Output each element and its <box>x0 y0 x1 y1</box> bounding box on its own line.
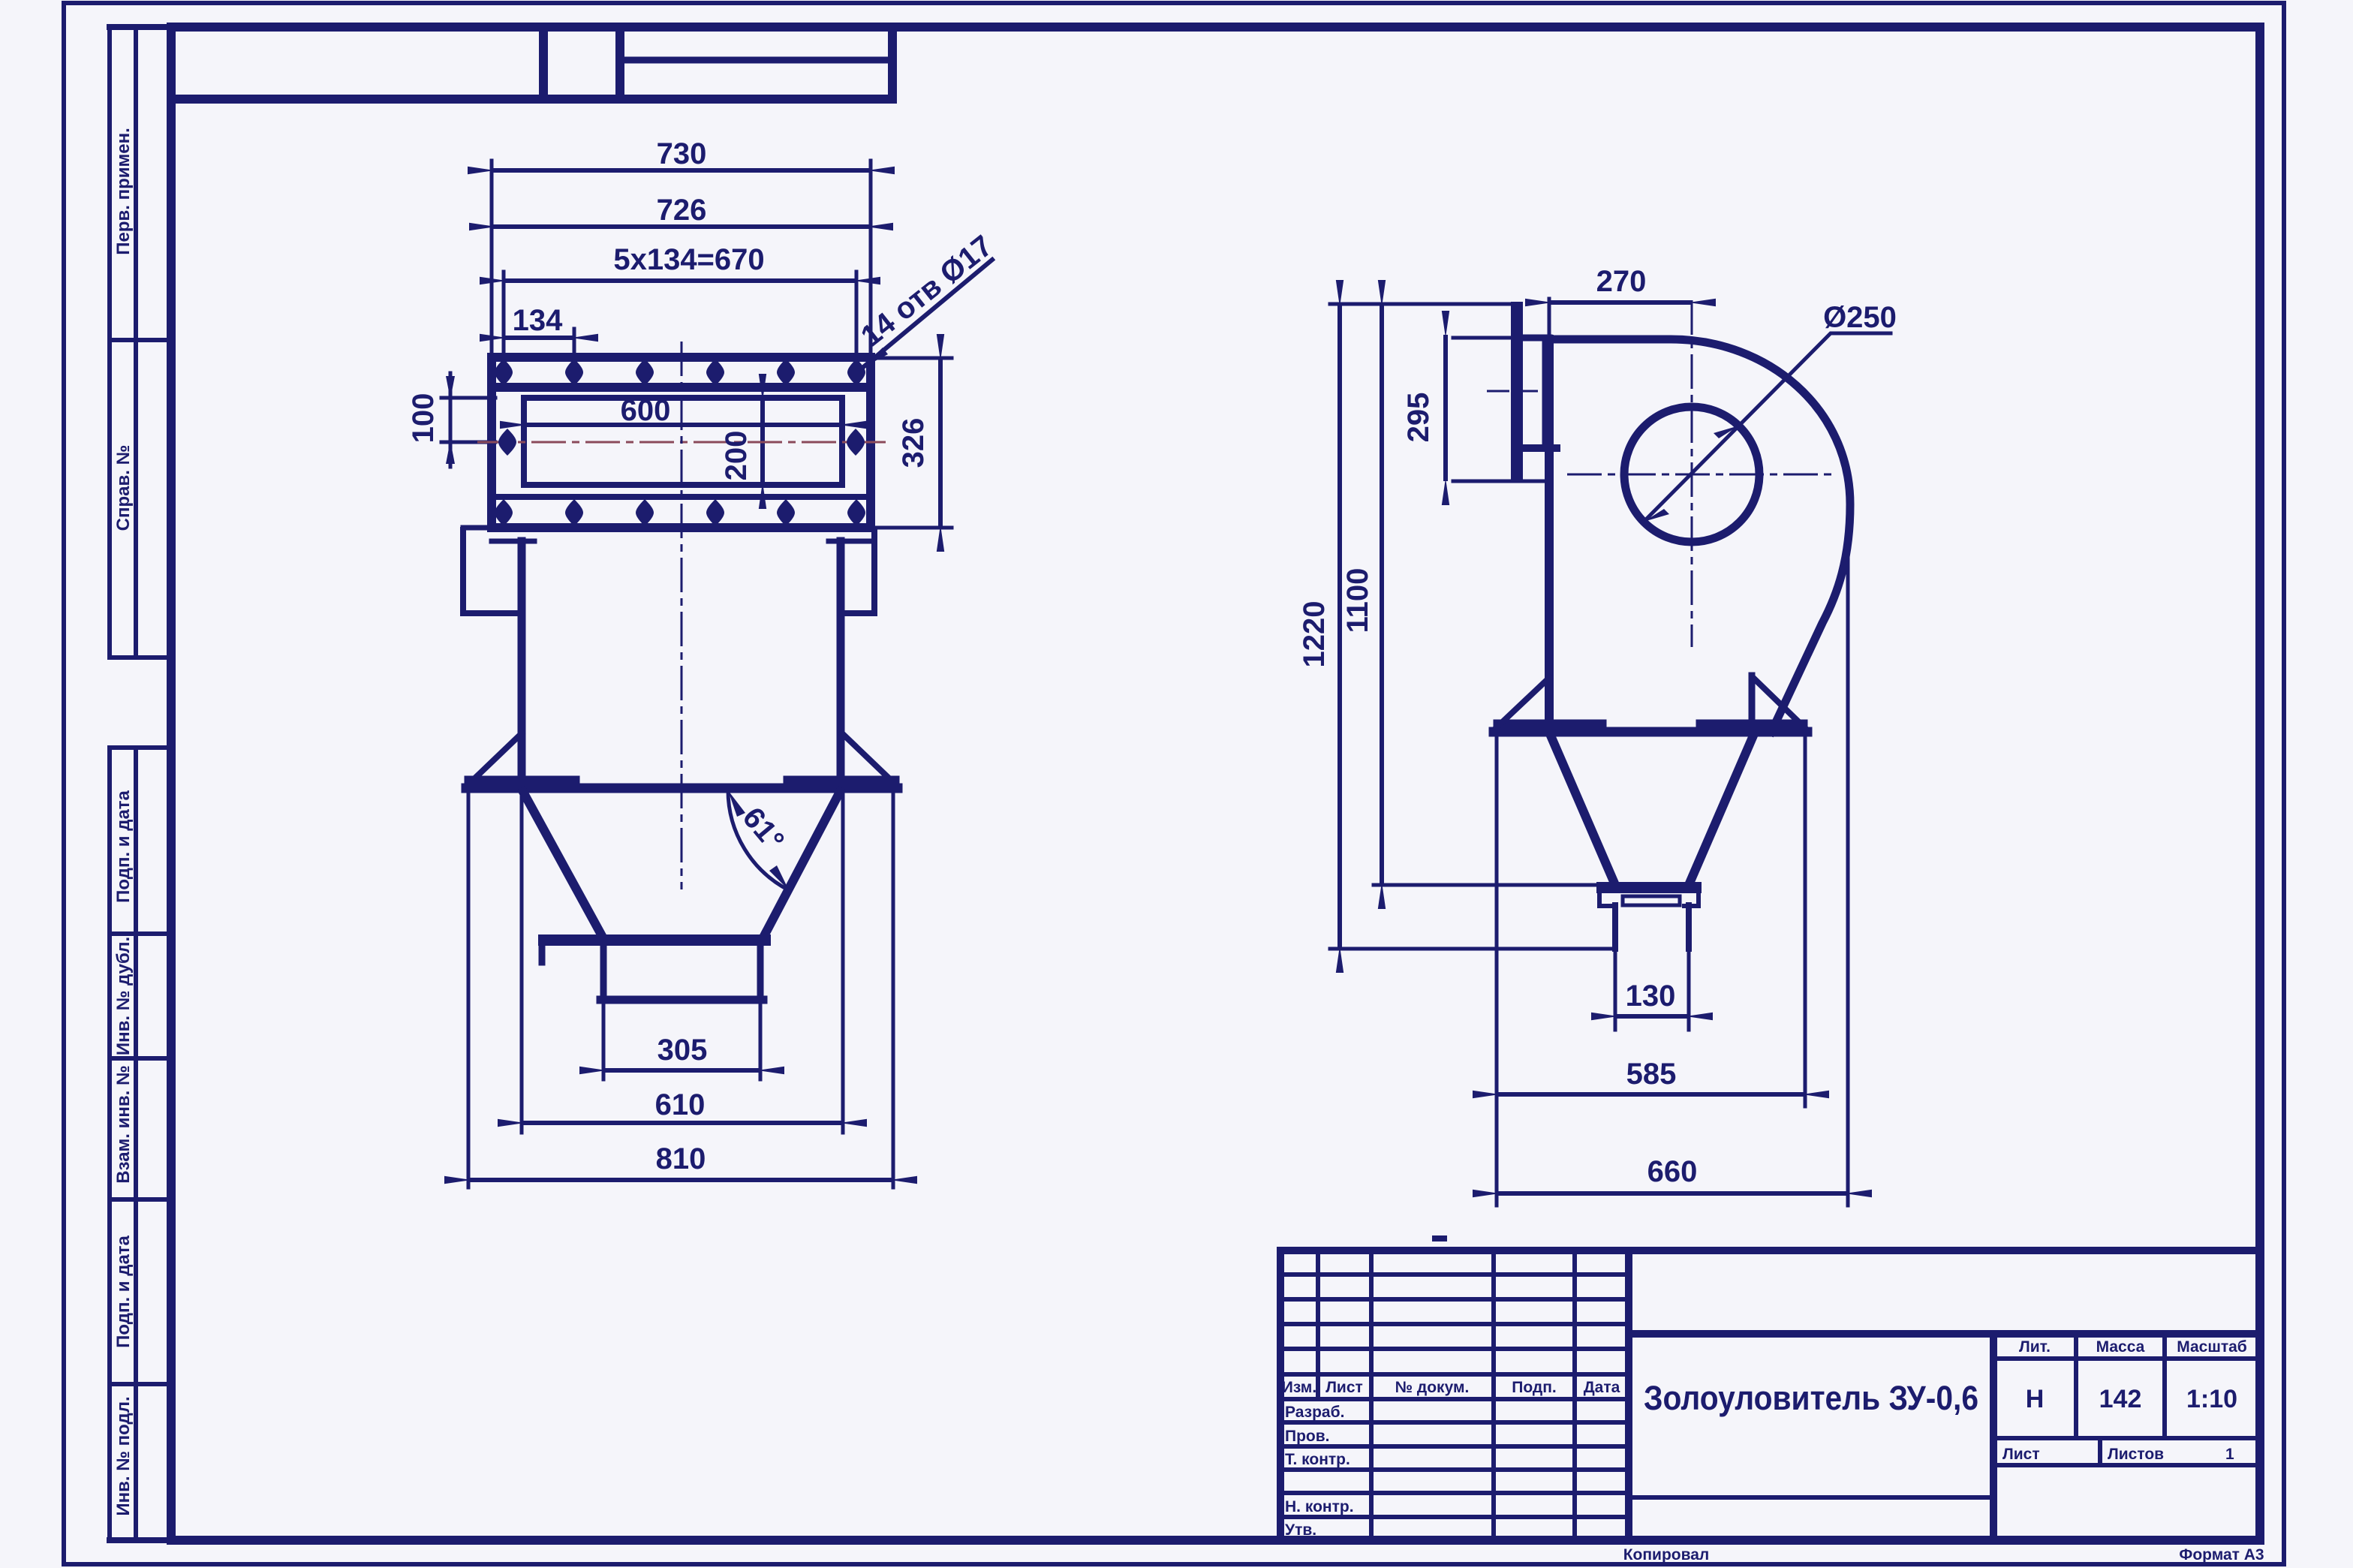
svg-text:130: 130 <box>1626 980 1676 1013</box>
svg-text:№ докум.: № докум. <box>1395 1379 1470 1396</box>
svg-text:Формат А3: Формат А3 <box>2179 1546 2264 1563</box>
svg-text:305: 305 <box>657 1034 708 1067</box>
svg-text:Подп.: Подп. <box>1512 1379 1557 1396</box>
svg-text:Листов: Листов <box>2108 1446 2164 1463</box>
svg-text:Н: Н <box>2026 1385 2045 1413</box>
svg-text:Лист: Лист <box>2002 1446 2040 1463</box>
svg-text:600: 600 <box>621 394 671 427</box>
svg-text:730: 730 <box>657 137 707 170</box>
svg-text:Разраб.: Разраб. <box>1285 1404 1344 1421</box>
svg-text:Ø250: Ø250 <box>1823 301 1897 334</box>
svg-text:585: 585 <box>1626 1058 1677 1091</box>
svg-text:Масса: Масса <box>2096 1338 2145 1356</box>
svg-text:Лит.: Лит. <box>2019 1338 2051 1356</box>
svg-text:Перв. примен.: Перв. примен. <box>113 128 134 255</box>
svg-text:Справ. №: Справ. № <box>113 445 134 531</box>
svg-text:Подп. и дата: Подп. и дата <box>113 790 134 902</box>
svg-text:326: 326 <box>897 418 930 468</box>
svg-text:1: 1 <box>2225 1446 2234 1463</box>
svg-text:Т. контр.: Т. контр. <box>1285 1451 1350 1468</box>
svg-text:Лист: Лист <box>1325 1379 1363 1396</box>
svg-text:660: 660 <box>1647 1155 1698 1188</box>
svg-text:Изм.: Изм. <box>1282 1379 1316 1396</box>
svg-text:295: 295 <box>1402 393 1435 443</box>
svg-text:1220: 1220 <box>1298 601 1331 668</box>
svg-text:Золоуловитель ЗУ-0,6: Золоуловитель ЗУ-0,6 <box>1644 1379 1978 1417</box>
svg-text:142: 142 <box>2099 1385 2142 1413</box>
svg-text:Инв. № дубл.: Инв. № дубл. <box>113 937 134 1055</box>
svg-text:Подп. и дата: Подп. и дата <box>113 1235 134 1347</box>
svg-text:Н. контр.: Н. контр. <box>1285 1498 1354 1515</box>
svg-text:Инв. № подл.: Инв. № подл. <box>113 1396 134 1515</box>
svg-text:100: 100 <box>407 393 440 444</box>
svg-text:Дата: Дата <box>1584 1379 1620 1396</box>
svg-text:1100: 1100 <box>1341 568 1374 634</box>
svg-text:134: 134 <box>513 304 563 337</box>
svg-text:Пров.: Пров. <box>1285 1428 1330 1445</box>
svg-text:1:10: 1:10 <box>2186 1385 2237 1413</box>
svg-text:810: 810 <box>656 1142 706 1175</box>
svg-text:Копировал: Копировал <box>1623 1546 1710 1563</box>
svg-text:200: 200 <box>720 431 753 481</box>
svg-text:610: 610 <box>655 1088 706 1121</box>
svg-text:Утв.: Утв. <box>1285 1521 1316 1539</box>
svg-text:726: 726 <box>657 194 707 227</box>
svg-text:Взам. инв. №: Взам. инв. № <box>113 1065 134 1183</box>
svg-text:Масштаб: Масштаб <box>2177 1338 2247 1356</box>
svg-text:5x134=670: 5x134=670 <box>613 243 764 276</box>
svg-text:270: 270 <box>1596 265 1647 298</box>
